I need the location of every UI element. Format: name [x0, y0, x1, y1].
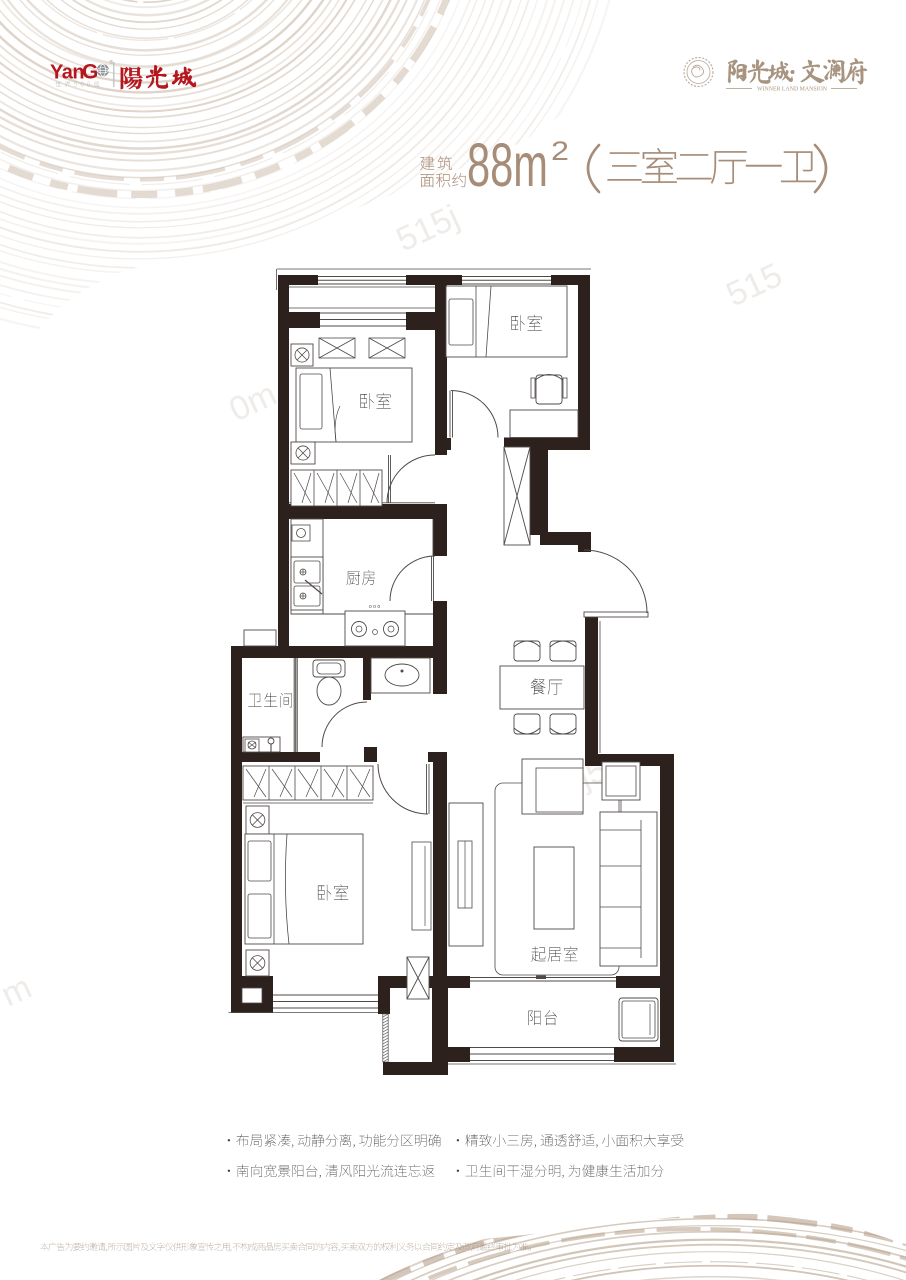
- svg-text:88m: 88m: [467, 131, 548, 199]
- svg-text:2: 2: [551, 136, 569, 166]
- svg-text:®: ®: [110, 59, 114, 66]
- svg-text:Yan: Yan: [50, 62, 84, 84]
- svg-text:o o o: o o o: [369, 604, 380, 610]
- svg-text:G: G: [82, 61, 98, 84]
- svg-text:WINNER LAND MANSION: WINNER LAND MANSION: [757, 86, 827, 93]
